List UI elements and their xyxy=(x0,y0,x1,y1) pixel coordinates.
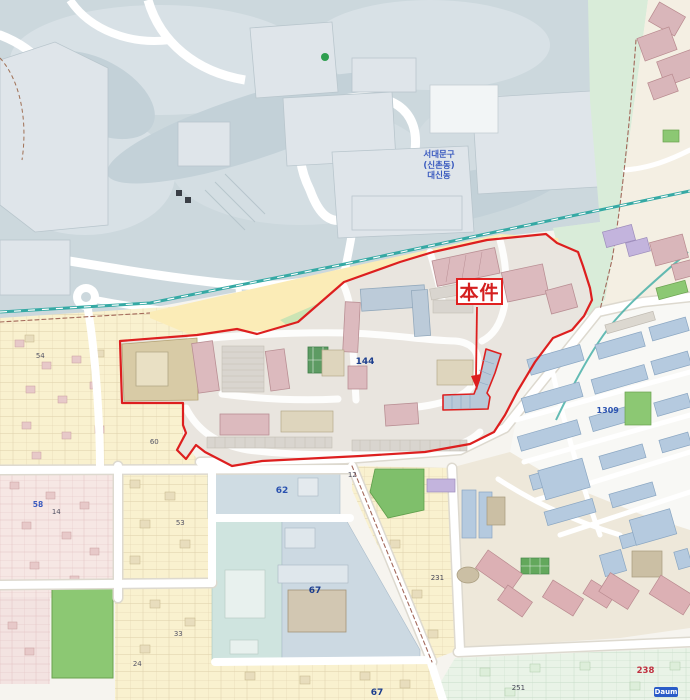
rowhouse-park xyxy=(625,392,651,425)
subject-property-label: 本件 xyxy=(456,278,503,305)
daum-logo[interactable]: Daum xyxy=(654,687,678,697)
park-poi-icon xyxy=(321,53,329,61)
map-canvas[interactable]: 서대문구 (신촌동) 대신동14462676713092382312515458… xyxy=(0,0,690,700)
map-graphics xyxy=(0,0,690,700)
